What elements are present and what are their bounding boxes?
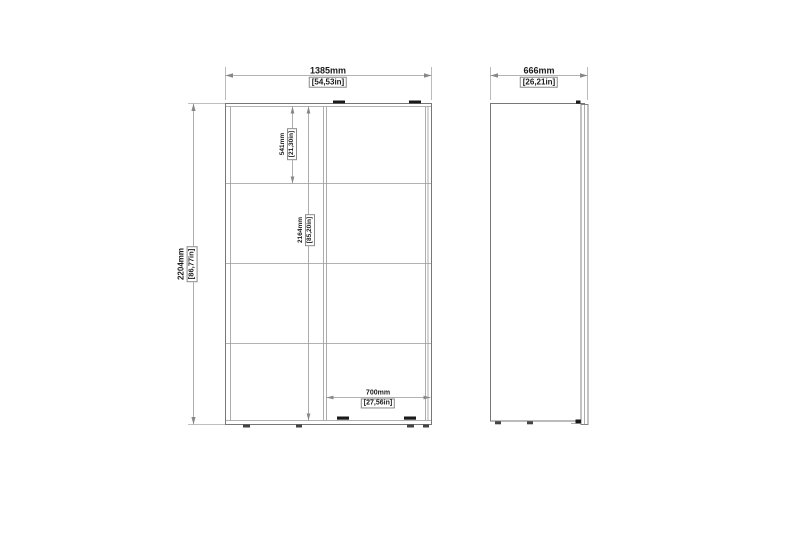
door-width-inch: [27,56in] xyxy=(361,399,395,409)
front-view xyxy=(226,101,432,428)
arrow-icon xyxy=(226,73,234,77)
interior-height-mm: 2164mm xyxy=(297,217,304,243)
front-width-mm: 1385mm xyxy=(310,65,346,75)
technical-drawing-canvas: 1385mm [54,53in] 666mm [26,21in] 2204mm … xyxy=(0,0,800,533)
dim-label-interior-height: 2164mm [85,20in] xyxy=(297,214,315,246)
bottom-wheel-left-icon xyxy=(337,417,349,420)
dim-label-top-section: 541mm [21,30in] xyxy=(279,128,297,160)
door-width-mm: 700mm xyxy=(366,389,390,397)
top-roller-right-icon xyxy=(409,101,421,104)
front-view-body-outline xyxy=(226,104,432,425)
arrow-icon xyxy=(424,73,432,77)
front-foot-3-icon xyxy=(407,425,414,428)
arrow-icon xyxy=(491,73,499,77)
front-foot-4-icon xyxy=(423,425,429,428)
wardrobe-dimension-drawing xyxy=(0,0,800,533)
dim-label-door-width: 700mm [27,56in] xyxy=(361,389,395,408)
front-foot-1-icon xyxy=(243,425,250,428)
front-height-mm: 2204mm xyxy=(177,248,186,280)
side-view-body-outline xyxy=(491,104,585,422)
arrow-icon xyxy=(191,417,195,425)
side-depth-inch: [26,21in] xyxy=(520,77,558,88)
dim-label-side-depth: 666mm [26,21in] xyxy=(520,65,558,88)
side-top-bracket-icon xyxy=(576,101,581,104)
front-foot-2-icon xyxy=(296,425,302,428)
interior-height-inch: [85,20in] xyxy=(306,214,315,246)
side-view xyxy=(491,101,589,425)
front-width-inch: [54,53in] xyxy=(309,77,347,88)
top-section-inch: [21,30in] xyxy=(288,128,297,160)
bottom-wheel-right-icon xyxy=(404,417,416,420)
side-foot-2-icon xyxy=(527,422,533,425)
top-roller-left-icon xyxy=(333,101,345,104)
front-height-inch: [86,77in] xyxy=(187,246,198,282)
dim-label-front-height: 2204mm [86,77in] xyxy=(177,246,198,282)
arrow-icon xyxy=(191,104,195,112)
top-section-mm: 541mm xyxy=(279,133,286,155)
dim-label-front-width: 1385mm [54,53in] xyxy=(309,65,347,88)
arrow-icon xyxy=(580,73,588,77)
side-depth-mm: 666mm xyxy=(523,65,554,75)
side-foot-1-icon xyxy=(495,422,501,425)
